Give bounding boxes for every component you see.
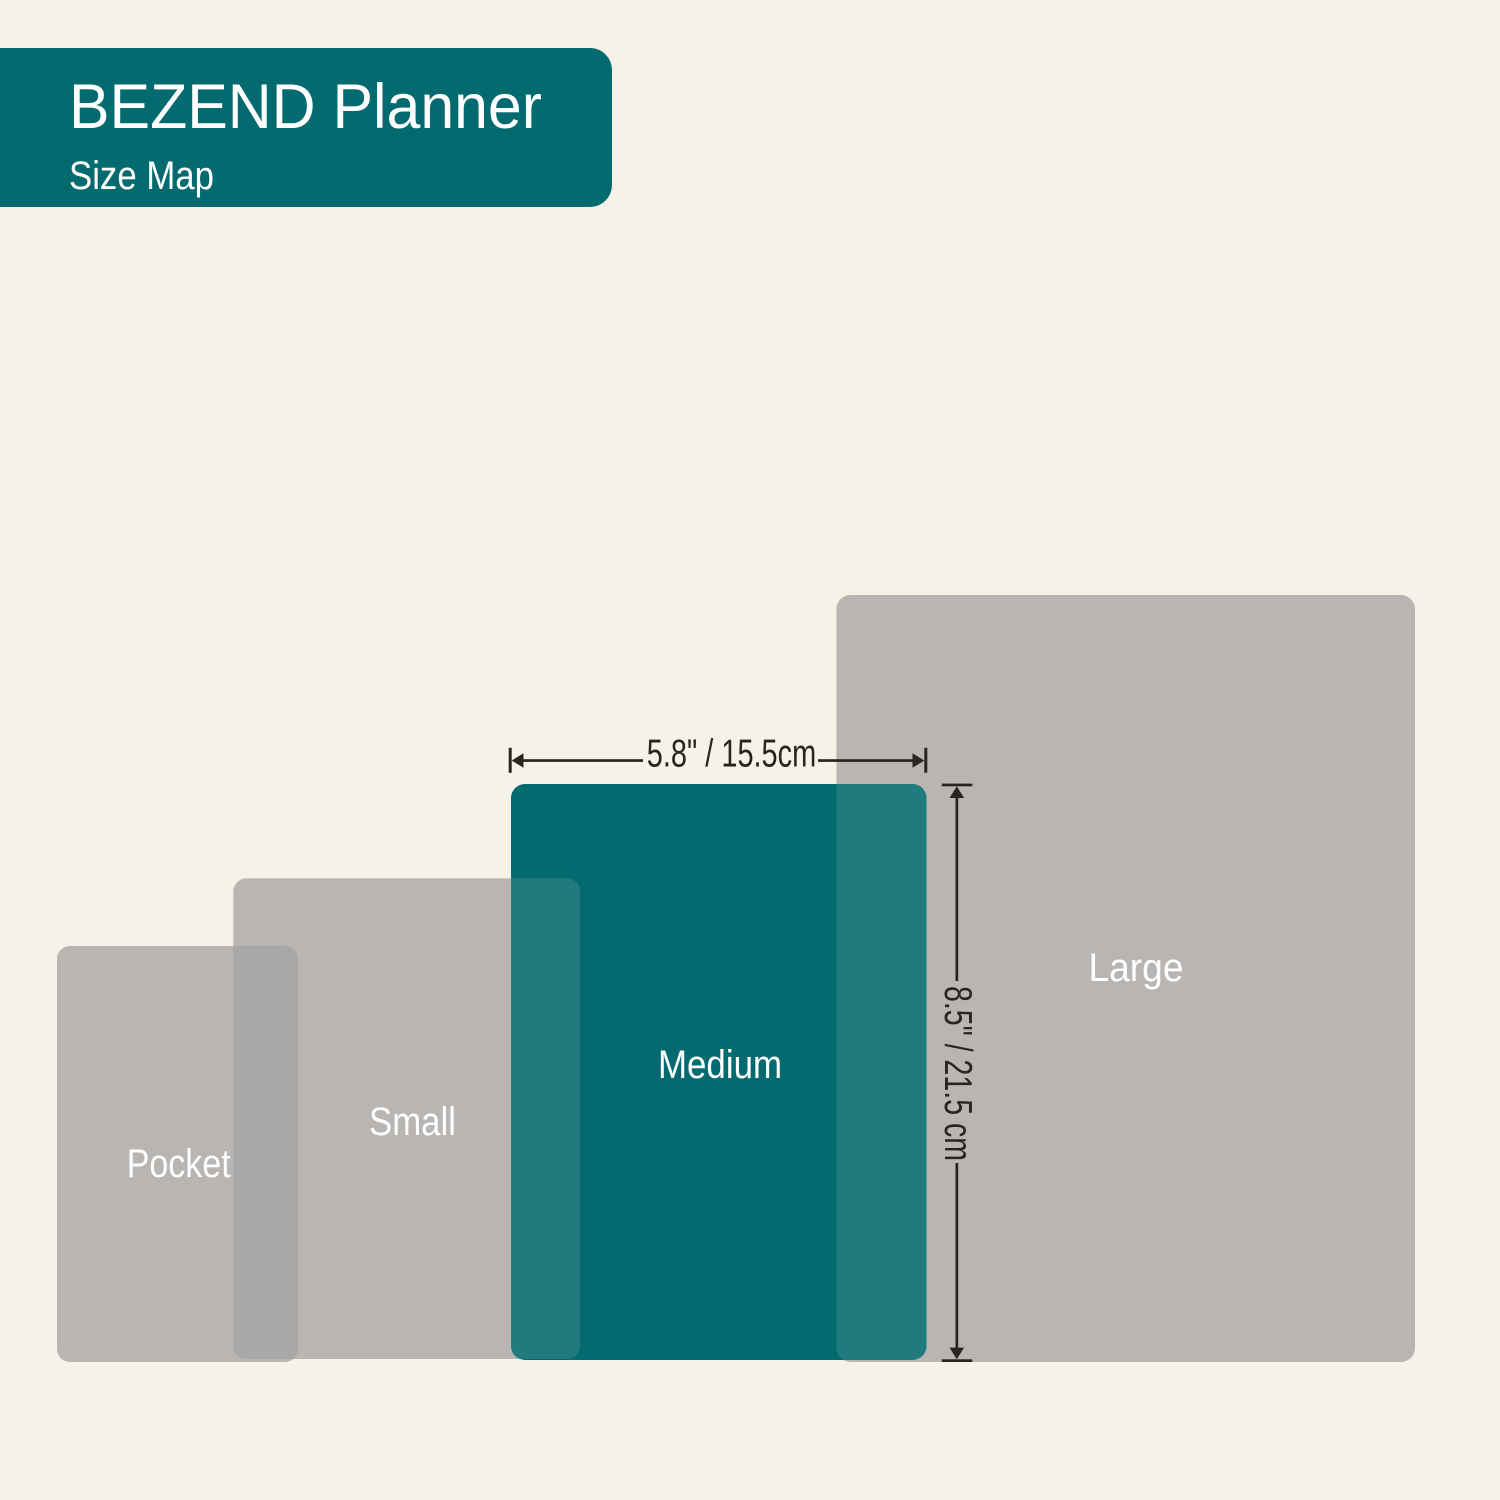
- svg-text:Medium: Medium: [658, 1043, 782, 1087]
- svg-text:8.5" / 21.5 cm: 8.5" / 21.5 cm: [936, 986, 979, 1161]
- svg-text:Small: Small: [369, 1100, 456, 1144]
- svg-text:BEZEND Planner: BEZEND Planner: [69, 72, 542, 142]
- svg-text:Size Map: Size Map: [69, 154, 214, 198]
- svg-text:Pocket: Pocket: [127, 1142, 231, 1186]
- svg-text:Large: Large: [1089, 946, 1184, 990]
- svg-text:5.8" / 15.5cm: 5.8" / 15.5cm: [647, 732, 816, 775]
